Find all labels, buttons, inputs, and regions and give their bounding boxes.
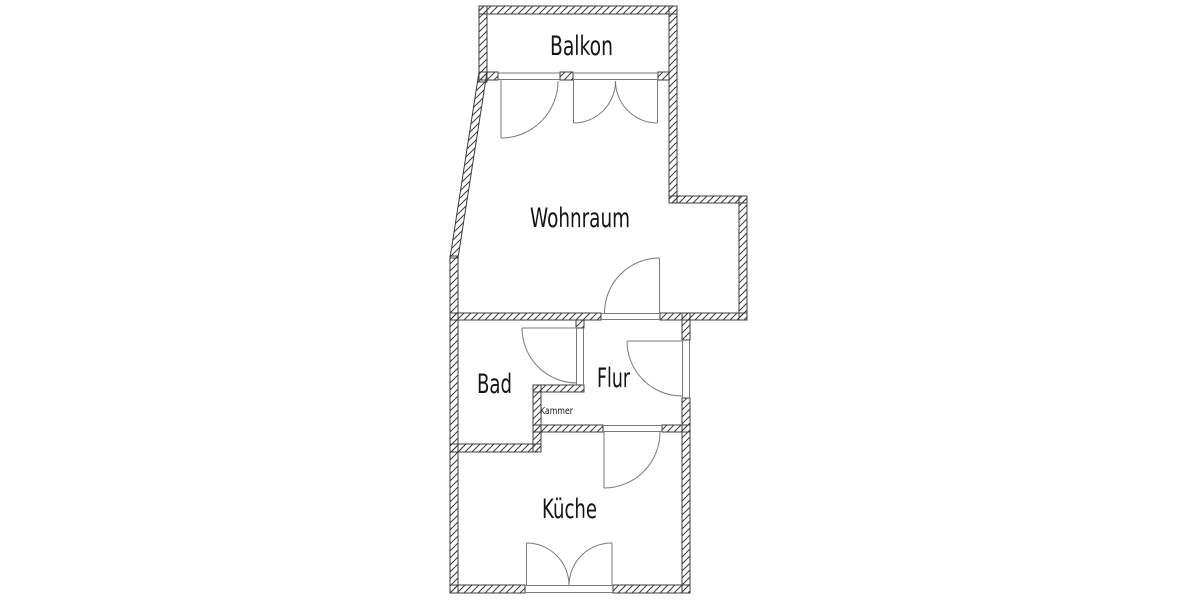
room-label-flur: Flur [597, 363, 631, 394]
room-label-bad: Bad [477, 369, 512, 400]
door-arc-kueche [604, 432, 660, 488]
room-label-kammer: Kammer [540, 406, 574, 417]
wall-balkon-bottom-mid [560, 72, 573, 80]
wall-wohnraum-bottom-left [450, 313, 601, 320]
window-arc-kueche-r [569, 543, 612, 585]
opening-balcony-door-left [498, 73, 560, 80]
opening-bad-door [577, 328, 584, 385]
door-arc-wohnraum [605, 258, 660, 313]
wall-kueche-top-left [533, 425, 603, 432]
wall-balkon-top [479, 6, 677, 14]
floorplan-drawing: Balkon Wohnraum Bad Flur Kammer Küche [0, 0, 1200, 600]
room-label-kueche: Küche [542, 494, 597, 525]
wall-left-slanted [450, 72, 487, 258]
opening-entrance-door [683, 340, 690, 398]
door-arc-balcony-left [501, 81, 558, 138]
wall-balkon-left [479, 6, 487, 82]
wall-balkon-bottom-right [658, 72, 669, 80]
wall-right-extension [739, 196, 747, 320]
opening-balcony-door-right [573, 73, 658, 80]
wall-bad-flur-divider-stub [576, 320, 584, 328]
wall-bad-bottom [450, 444, 541, 452]
wall-kammer-left [533, 385, 541, 452]
wall-right-flur-upper [682, 313, 690, 340]
window-arc-kueche-l [527, 543, 570, 585]
wall-left-vertical [450, 256, 458, 593]
door-arc-balcony-double-r [616, 81, 658, 123]
room-label-balkon: Balkon [550, 31, 613, 62]
wall-bottom-left [450, 585, 525, 593]
wall-bottom-right [613, 585, 690, 593]
wall-wohnraum-bottom-right [660, 313, 747, 320]
wall-notch-horizontal [669, 196, 747, 203]
floorplan-canvas: Balkon Wohnraum Bad Flur Kammer Küche [0, 0, 1200, 600]
door-arc-bad [522, 328, 577, 383]
opening-kueche-door [603, 426, 662, 432]
door-arc-entrance [627, 341, 682, 396]
room-label-wohnraum: Wohnraum [530, 203, 630, 234]
walls-layer [450, 6, 747, 593]
door-arc-balcony-double-l [574, 81, 616, 123]
wall-right-kueche [682, 398, 690, 593]
opening-kueche-window [525, 586, 613, 593]
wall-right-upper [669, 6, 677, 203]
opening-wohnraum-flur-door [601, 314, 660, 320]
